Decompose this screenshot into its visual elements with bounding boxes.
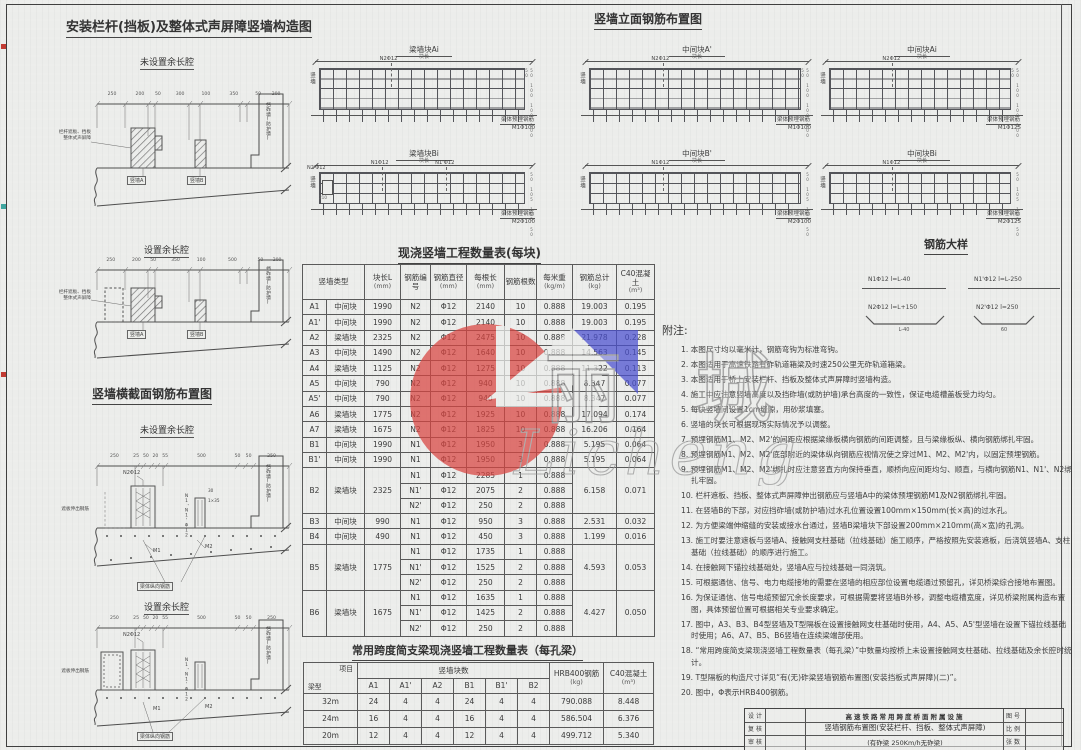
dimension-row: 2502005035010050050200 (97, 258, 289, 263)
railing-callout-line2: 整体式声屏障 (45, 136, 91, 142)
cross-section-drawing-2 (45, 612, 297, 750)
cell-bar-dia: Φ12 (431, 376, 467, 391)
panel-right-dims: 50 105 105 50 (1015, 172, 1020, 237)
small-dim: 30 (208, 488, 213, 493)
embed-bar-label: 梁体预埋钢筋M1Φ100 (776, 117, 811, 133)
cell-type: 梁墙块 (327, 544, 365, 590)
left-hole-dim: 210 (319, 195, 327, 200)
cell-bar-no: N2' (401, 621, 431, 636)
cell-code: A5 (303, 376, 327, 391)
dimension-value: 300 (163, 92, 197, 97)
cell-count: 4 (518, 694, 550, 711)
cell-bar-each: 2285 (467, 468, 505, 483)
cell-code: A5' (303, 391, 327, 406)
cell-conc: 0.164 (617, 422, 655, 437)
n1-label: N1、N1'Φ12 (183, 658, 189, 692)
rebar-callout: N2Φ12 (882, 56, 900, 62)
cell-bar-unitw: 0.888 (537, 361, 573, 376)
elevation-title: 竖墙立面钢筋布置图 (594, 10, 702, 30)
cell-type: 梁墙块 (327, 407, 365, 422)
rebar-n2-dim: L-40 (876, 327, 932, 333)
column-header-label: 钢筋根数 (505, 277, 536, 286)
ballast-wall-label: 挡砟墙(防护墙) (264, 464, 271, 524)
rebar-n1p-label: N1'Φ12 l=L-250 (974, 276, 1022, 283)
cell-bar-dia: Φ12 (431, 315, 467, 330)
cell-bar-unitw: 0.888 (537, 529, 573, 544)
cell-conc: 8.448 (604, 694, 654, 711)
cell-bar-each: 940 (467, 391, 505, 406)
dimension-line (315, 165, 533, 166)
cell-bar-each: 2140 (467, 300, 505, 315)
cell-bar-count: 10 (505, 376, 537, 391)
callout-leader (446, 167, 447, 191)
cell-total: 11.322 (573, 361, 617, 376)
cell-len: 2325 (365, 330, 401, 345)
cell-bar-unitw: 0.888 (537, 605, 573, 620)
rebar-header-unit: (kg) (550, 679, 603, 687)
block-col-header: B1 (454, 678, 486, 694)
rebar-n2p-dim: 60 (982, 327, 1026, 333)
dimension-value: 350 (215, 92, 254, 97)
dimension-line (825, 61, 1019, 62)
elevation-panel: 中间块B'块长竖墙50 105 105 50梁体预埋钢筋M2Φ100N1Φ12 (583, 148, 811, 252)
note-item: 14. 在接触网下锚拉线基础处，竖墙A应与拉线基础一同浇筑。 (681, 562, 1073, 574)
cell-bar-dia: Φ12 (431, 391, 467, 406)
title-block-line2: 竖墙钢筋布置图(安装栏杆、挡板、整体式声屏障) (807, 722, 1003, 733)
cell-bar-each: 1950 (467, 452, 505, 467)
cross-section-diagram-1: 250255020555005050250 N2Φ12 N1、N1'Φ12 30… (45, 436, 297, 604)
column-header-label: 每米重 (537, 273, 572, 282)
table-row: B4中间块490N1Φ1245030.8881.1990.016 (303, 529, 655, 544)
dimension-value: 50 (140, 454, 151, 459)
panel-dim-label: 块长 (823, 157, 1021, 164)
panel-side-label: 竖墙 (308, 176, 316, 189)
callout-leader (391, 63, 392, 87)
cell-type: 梁墙块 (327, 361, 365, 376)
embed-bar-label-text: 梁体预埋钢筋 (986, 211, 1021, 219)
cell-bar-dia: Φ12 (431, 514, 467, 529)
cell-bar-dia: Φ12 (431, 529, 467, 544)
cell-bar-no: N2 (401, 376, 431, 391)
table-row: 24m16441644586.5046.376 (304, 711, 654, 728)
cell-count: 4 (422, 711, 454, 728)
cell-bar-no: N1' (401, 560, 431, 575)
cell-bar-dia: Φ12 (431, 345, 467, 360)
longitudinal-rebar-callout: 梁体纵向钢筋 (137, 582, 173, 591)
cell-len: 1125 (365, 361, 401, 376)
main-table-title: 现浇竖墙工程数量表(每块) (398, 244, 541, 264)
cell-bar-unitw: 0.888 (537, 575, 573, 590)
cell-code: B1 (303, 437, 327, 452)
cell-bar-dia: Φ12 (431, 483, 467, 498)
dimension-value: 200 (265, 258, 289, 263)
span-table-title: 常用跨度简支梁现浇竖墙工程数量表（每孔梁） (352, 642, 583, 661)
table-row: A1'中间块1990N2Φ122140100.88819.0030.195 (303, 315, 655, 330)
cell-count: 16 (454, 711, 486, 728)
dimension-line (825, 165, 1019, 166)
n2-callout: N2Φ12 (123, 632, 140, 638)
span-quantity-table: 项目梁型竖墙块数HRB400钢筋(kg)C40混凝土(m³)A1A1'A2B1B… (303, 662, 654, 745)
cell-conc: 0.195 (617, 300, 655, 315)
dimension-value: 250 (97, 258, 125, 263)
cell-len: 1675 (365, 590, 401, 636)
deck-line (311, 209, 537, 210)
m1-label: M1 (153, 706, 161, 712)
callout-leader (892, 63, 893, 87)
cell-bar-no: N1 (401, 514, 431, 529)
rebar-grid (319, 68, 525, 110)
cell-bar-each: 2075 (467, 483, 505, 498)
sheets-label: 张数 (1006, 737, 1022, 746)
cell-bar-each: 2140 (467, 315, 505, 330)
title-block: 设计 复核 审核 高速铁路常用跨度桥面附属设施 竖墙钢筋布置图(安装栏杆、挡板、… (744, 708, 1064, 750)
cell-code: B6 (303, 590, 327, 636)
rebar-grid (829, 172, 1011, 204)
cell-bar-count: 1 (505, 468, 537, 483)
column-header-label: 钢筋编号 (401, 273, 430, 292)
note-item: 2. 本图适用于高速铁路有砟轨道箱梁及时速250公里无砟轨道箱梁。 (681, 359, 1073, 371)
panel-dim-label: 块长 (313, 53, 535, 60)
dimension-value: 50 (232, 454, 243, 459)
dimension-row: 2502005030010035050200 (97, 92, 289, 97)
concrete-header-label: C40混凝土 (604, 669, 653, 678)
cell-total: 5.195 (573, 437, 617, 452)
cell-type: 中间块 (327, 391, 365, 406)
construction-title: 安装栏杆(挡板)及整体式声屏障竖墙构造图 (66, 16, 312, 38)
note-item: 10. 栏杆遮板、挡板、整体式声屏障伸出钢筋应与竖墙A中的梁体预埋钢筋M1及N2… (681, 490, 1073, 502)
cell-count: 4 (390, 711, 422, 728)
left-bar-callout: N2'Φ12 (307, 165, 326, 171)
cell-total: 19.003 (573, 315, 617, 330)
cell-len: 1775 (365, 544, 401, 590)
cell-type: 中间块 (327, 514, 365, 529)
cell-bar-no: N1' (401, 605, 431, 620)
note-item: 5. 每块竖墙间设置1cm缝隙，用砂浆填塞。 (681, 404, 1073, 416)
drain-hole (322, 180, 333, 195)
panel-side-label: 竖墙 (818, 72, 826, 85)
block-col-header: A1 (358, 678, 390, 694)
cell-bar-count: 10 (505, 391, 537, 406)
dimension-value: 500 (171, 616, 232, 621)
cell-total: 14.563 (573, 345, 617, 360)
cell-bar-no: N2 (401, 422, 431, 437)
cell-bar-unitw: 0.888 (537, 345, 573, 360)
block-col-header: B2 (518, 678, 550, 694)
cell-type: 中间块 (327, 529, 365, 544)
cell-bar-no: N1' (401, 483, 431, 498)
scan-artifact (1, 44, 6, 49)
quantity-table: 竖墙类型块长L(mm)钢筋编号钢筋直径(mm)每根长(mm)钢筋根数每米重(kg… (302, 264, 655, 637)
cell-bar-each: 450 (467, 529, 505, 544)
cell-total: 8.347 (573, 391, 617, 406)
cell-bar-no: N2 (401, 345, 431, 360)
dimension-value: 500 (171, 454, 232, 459)
column-header: 钢筋编号 (401, 265, 431, 300)
column-header: 钢筋直径(mm) (431, 265, 467, 300)
small-dim: 1×35 (208, 498, 220, 503)
cell-code: A1 (303, 300, 327, 315)
cell-type: 中间块 (327, 437, 365, 452)
cell-count: 12 (454, 728, 486, 745)
cell-bar-no: N1 (401, 452, 431, 467)
cell-total: 1.199 (573, 529, 617, 544)
cell-len: 1990 (365, 437, 401, 452)
embed-bar-label: 梁体预埋钢筋M2Φ100 (776, 211, 811, 227)
cell-bar-unitw: 0.888 (537, 452, 573, 467)
dimension-line (585, 61, 809, 62)
cell-len: 1675 (365, 422, 401, 437)
note-item: 7. 预埋钢筋M1、M2、M2'的间距应根据梁缘板横向钢筋的间距调整，且与梁缘板… (681, 434, 1073, 446)
dimension-value: 55 (159, 616, 171, 621)
cell-bar-no: N1 (401, 544, 431, 559)
rebar-header: HRB400钢筋(kg) (550, 663, 604, 694)
column-header: 每根长(mm) (467, 265, 505, 300)
table-row: B5梁墙块1775N1Φ12173510.8884.5930.053 (303, 544, 655, 559)
rebar-n2-shape (864, 314, 946, 326)
dimension-line (585, 165, 809, 166)
cell-bar-count: 1 (505, 590, 537, 605)
construction-diagram-1: 2502005030010035050200 栏杆遮板、挡板 整体式声屏障 竖墙… (45, 70, 297, 242)
cell-conc: 0.064 (617, 452, 655, 467)
panel-right-dims: 50 100 100 100 50 (800, 68, 810, 148)
column-header-label: 每根长 (467, 273, 504, 282)
cell-bar-no: N1 (401, 529, 431, 544)
design-label: 设计 (748, 711, 764, 720)
cell-bar-each: 1275 (467, 361, 505, 376)
cell-count: 12 (358, 728, 390, 745)
cell-bar-no: N2 (401, 315, 431, 330)
column-header-label: 块长L (365, 273, 400, 282)
wall-a-label: 竖墙A (127, 176, 146, 185)
note-item: 17. 图中，A3、B3、B4型竖墙及T型隔板在设置接触网支柱基础时使用，A4、… (681, 619, 1073, 643)
deck-line (821, 209, 1023, 210)
column-header: 竖墙类型 (303, 265, 365, 300)
cell-conc: 0.016 (617, 529, 655, 544)
concrete-header: C40混凝土(m³) (604, 663, 654, 694)
panel-right-dims: 50 105 105 50 (805, 172, 810, 237)
cell-rebar: 790.088 (550, 694, 604, 711)
cell-span: 32m (304, 694, 358, 711)
dimension-value: 50 (243, 454, 254, 459)
table-row: B6梁墙块1675N1Φ12163510.8884.4270.050 (303, 590, 655, 605)
panel-side-label: 竖墙 (578, 72, 586, 85)
elevation-panel: 梁墙块Ai块长竖墙50 100 100 100 50梁体预埋钢筋M1Φ100N2… (313, 44, 535, 148)
rebar-grid (829, 68, 1011, 110)
table-row: 32m24442444790.0888.448 (304, 694, 654, 711)
cell-type: 中间块 (327, 345, 365, 360)
rebar-callout: N1Φ12 (882, 160, 900, 166)
wall-b-label: 竖墙B (187, 176, 206, 185)
table-row: A2梁墙块2325N2Φ122475100.88821.9780.228 (303, 330, 655, 345)
cell-type: 中间块 (327, 376, 365, 391)
embed-bar-label: 梁体预埋钢筋M2Φ125 (986, 211, 1021, 227)
dimension-value: 50 (153, 92, 163, 97)
cell-bar-each: 1425 (467, 605, 505, 620)
rebar-details: 钢筋大样 N1Φ12 l=L-40 N1'Φ12 l=L-250 N2Φ12 l… (862, 236, 1077, 340)
table-row: B2梁墙块2325N1Φ12228510.8886.1580.071 (303, 468, 655, 483)
note-item: 16. 为保证通信、信号电缆预留冗余长度要求，可根据需要将竖墙B外移，调整电缆槽… (681, 592, 1073, 616)
dimension-value: 55 (159, 454, 171, 459)
table-row: B1中间块1990N1Φ12195030.8885.1950.064 (303, 437, 655, 452)
column-header: C40混凝土(m³) (617, 265, 655, 300)
cell-total: 21.978 (573, 330, 617, 345)
note-item: 3. 本图适用于桥上安装栏杆、挡板及整体式声屏障时竖墙构造。 (681, 374, 1073, 386)
cell-count: 4 (390, 694, 422, 711)
cell-count: 4 (486, 728, 518, 745)
dimension-row: 250255020555005050250 (97, 454, 289, 459)
cell-len: 1990 (365, 315, 401, 330)
rebar-n2p-label: N2'Φ12 l=250 (976, 304, 1018, 311)
cell-code: B3 (303, 514, 327, 529)
rebar-n1-shape (862, 288, 946, 289)
note-item: 8. 预埋钢筋M1、M2、M2'底部附近的梁体纵向钢筋应视情况使之穿过M1、M2… (681, 449, 1073, 461)
rebar-header-label: HRB400钢筋 (550, 669, 603, 678)
cell-bar-dia: Φ12 (431, 590, 467, 605)
dimension-value: 250 (254, 616, 289, 621)
cell-bar-count: 2 (505, 621, 537, 636)
cell-count: 4 (390, 728, 422, 745)
rebar-n1p-shape (968, 288, 1060, 289)
column-header-label: 钢筋总计 (573, 273, 616, 282)
cell-bar-count: 3 (505, 452, 537, 467)
construction-drawing-2 (45, 254, 297, 376)
cell-bar-each: 1925 (467, 407, 505, 422)
m2-label: M2 (205, 544, 213, 550)
review-label: 审核 (748, 737, 764, 746)
panel-dim-label: 块长 (823, 53, 1021, 60)
cell-bar-count: 2 (505, 575, 537, 590)
cell-bar-count: 10 (505, 300, 537, 315)
cell-type: 梁墙块 (327, 330, 365, 345)
cell-code: A7 (303, 422, 327, 437)
cell-count: 4 (422, 694, 454, 711)
cell-total: 4.593 (573, 544, 617, 590)
cell-len: 990 (365, 514, 401, 529)
cell-type: 中间块 (327, 315, 365, 330)
cell-bar-unitw: 0.888 (537, 498, 573, 513)
cell-bar-no: N2 (401, 300, 431, 315)
cell-code: B2 (303, 468, 327, 514)
cell-type: 梁墙块 (327, 468, 365, 514)
table-row: A6梁墙块1775N2Φ121925100.88817.0940.174 (303, 407, 655, 422)
panel-dim-label: 块长 (583, 53, 811, 60)
panel-right-dims: 50 100 100 100 50 (524, 68, 534, 148)
cell-bar-each: 1640 (467, 345, 505, 360)
cell-bar-no: N2' (401, 575, 431, 590)
cell-total: 17.094 (573, 407, 617, 422)
scale-label: 比例 (1006, 724, 1022, 733)
callout-leader (382, 167, 383, 191)
column-header: 钢筋根数 (505, 265, 537, 300)
cell-bar-unitw: 0.888 (537, 300, 573, 315)
column-header-unit: (mm) (431, 283, 466, 291)
check-label: 复核 (748, 724, 764, 733)
cell-span: 20m (304, 728, 358, 745)
cell-bar-unitw: 0.888 (537, 330, 573, 345)
cell-type: 中间块 (327, 452, 365, 467)
column-header-label: 竖墙类型 (303, 277, 364, 286)
cell-bar-unitw: 0.888 (537, 391, 573, 406)
dimension-value: 250 (97, 92, 127, 97)
cell-bar-dia: Φ12 (431, 605, 467, 620)
rebar-grid (589, 68, 801, 110)
dimension-value: 350 (158, 258, 193, 263)
column-header-unit: (m³) (617, 287, 654, 295)
cell-conc: 0.064 (617, 437, 655, 452)
cell-code: A3 (303, 345, 327, 360)
rebar-callout: N2Φ12 (380, 56, 398, 62)
scan-artifact (1, 204, 6, 209)
cell-code: B4 (303, 529, 327, 544)
rebar-grid (319, 172, 525, 204)
dimension-value: 200 (125, 258, 149, 263)
embed-bar-label: 梁体预埋钢筋M2Φ100 (500, 211, 535, 227)
concrete-header-unit: (m³) (604, 679, 653, 687)
note-item: 11. 在竖墙B的下部，对应挡砟墙(或防护墙)过水孔位置设置100mm×150m… (681, 505, 1073, 517)
rebar-callout: N1Φ12 (651, 160, 669, 166)
cell-bar-count: 10 (505, 330, 537, 345)
cell-bar-dia: Φ12 (431, 560, 467, 575)
cell-total: 8.347 (573, 376, 617, 391)
panel-dim-label: 块长 (583, 157, 811, 164)
wall-a-label: 竖墙A (127, 330, 146, 339)
cell-total: 6.158 (573, 468, 617, 514)
embed-bar-label-text: 梁体预埋钢筋 (500, 211, 535, 219)
cell-bar-each: 1525 (467, 560, 505, 575)
cell-bar-no: N1 (401, 468, 431, 483)
cell-len: 1990 (365, 452, 401, 467)
table-row: B1'中间块1990N1Φ12195030.8885.1950.064 (303, 452, 655, 467)
embed-bar-label: 梁体预埋钢筋M1Φ125 (986, 117, 1021, 133)
cell-bar-dia: Φ12 (431, 361, 467, 376)
cell-bar-count: 10 (505, 361, 537, 376)
deck-line (821, 115, 1023, 116)
cell-bar-each: 940 (467, 376, 505, 391)
dimension-value: 200 (263, 92, 289, 97)
cell-bar-unitw: 0.888 (537, 483, 573, 498)
panel-dim-label: 块长 (313, 157, 535, 164)
panel-right-dims: 50 100 100 100 50 (1010, 68, 1020, 148)
cross-section-title: 竖墙横截面钢筋布置图 (92, 385, 212, 405)
cell-count: 24 (454, 694, 486, 711)
cell-total: 5.195 (573, 452, 617, 467)
cell-count: 4 (486, 711, 518, 728)
cell-code: A1' (303, 315, 327, 330)
n1-label: N1、N1'Φ12 (183, 494, 189, 528)
cell-bar-count: 10 (505, 407, 537, 422)
cell-conc: 5.340 (604, 728, 654, 745)
cell-total: 16.206 (573, 422, 617, 437)
cell-type: 中间块 (327, 300, 365, 315)
cell-len: 1490 (365, 345, 401, 360)
cell-conc: 0.174 (617, 407, 655, 422)
rebar-grid (589, 172, 801, 204)
dimension-value: 20 (151, 616, 159, 621)
cell-count: 16 (358, 711, 390, 728)
table-row: A3中间块1490N2Φ121640100.88814.5630.145 (303, 345, 655, 360)
cell-code: A4 (303, 361, 327, 376)
drawing-no-label: 图号 (1006, 711, 1022, 720)
embed-bar-mark: M1Φ100 (776, 125, 811, 132)
dimension-line (315, 61, 533, 62)
embed-bar-mark: M2Φ125 (986, 219, 1021, 226)
note-item: 20. 图中，Φ表示HRB400钢筋。 (681, 687, 1073, 699)
table-row: A5中间块790N2Φ12940100.8888.3470.077 (303, 376, 655, 391)
cell-bar-each: 1950 (467, 437, 505, 452)
column-header-label: C40混凝土 (617, 269, 654, 288)
cell-bar-count: 3 (505, 514, 537, 529)
note-item: 4. 施工中应注意竖墙高度以及挡砟墙(或防护墙)承台高度的一致性，保证电缆槽盖板… (681, 389, 1073, 401)
